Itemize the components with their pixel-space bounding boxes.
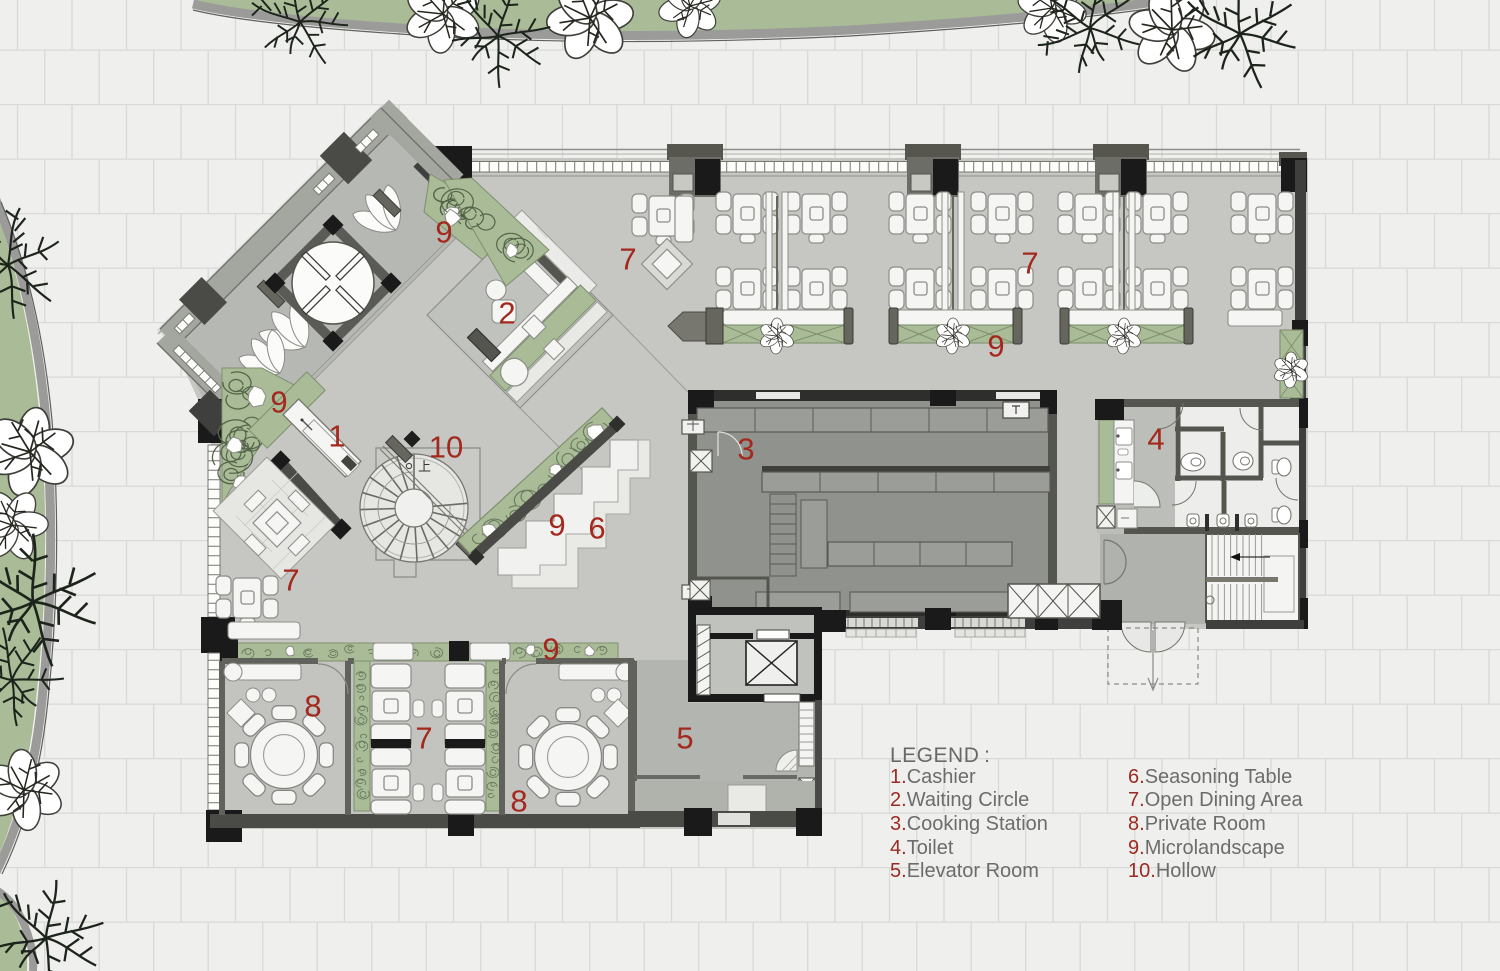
svg-text:10.Hollow: 10.Hollow	[1128, 860, 1216, 882]
svg-text:9.Microlandscape: 9.Microlandscape	[1128, 837, 1285, 859]
svg-text:8.Private Room: 8.Private Room	[1128, 813, 1266, 835]
svg-text:1.Cashier: 1.Cashier	[890, 766, 976, 788]
svg-text:7: 7	[282, 563, 299, 598]
svg-text:9: 9	[270, 385, 287, 420]
svg-text:6: 6	[588, 511, 605, 546]
svg-text:5: 5	[676, 721, 693, 756]
svg-text:9: 9	[987, 329, 1004, 364]
svg-text:8: 8	[304, 689, 321, 724]
svg-text:5.Elevator Room: 5.Elevator Room	[890, 860, 1039, 882]
svg-text:7: 7	[415, 721, 432, 756]
svg-text:7: 7	[619, 242, 636, 277]
svg-text:9: 9	[548, 508, 565, 543]
svg-text:9: 9	[435, 215, 452, 250]
svg-text:2.Waiting Circle: 2.Waiting Circle	[890, 789, 1029, 811]
svg-text:3.Cooking Station: 3.Cooking Station	[890, 813, 1048, 835]
svg-text:10: 10	[429, 430, 463, 465]
svg-text:LEGEND :: LEGEND :	[890, 744, 990, 767]
svg-text:8: 8	[510, 784, 527, 819]
svg-text:2: 2	[498, 296, 515, 331]
svg-text:1: 1	[328, 419, 345, 454]
svg-text:3: 3	[737, 432, 754, 467]
svg-text:9: 9	[542, 632, 559, 667]
svg-text:7.Open Dining Area: 7.Open Dining Area	[1128, 789, 1303, 811]
svg-text:4: 4	[1147, 422, 1164, 457]
svg-text:7: 7	[1021, 246, 1038, 281]
svg-text:6.Seasoning Table: 6.Seasoning Table	[1128, 766, 1292, 788]
svg-text:4.Toilet: 4.Toilet	[890, 837, 954, 859]
